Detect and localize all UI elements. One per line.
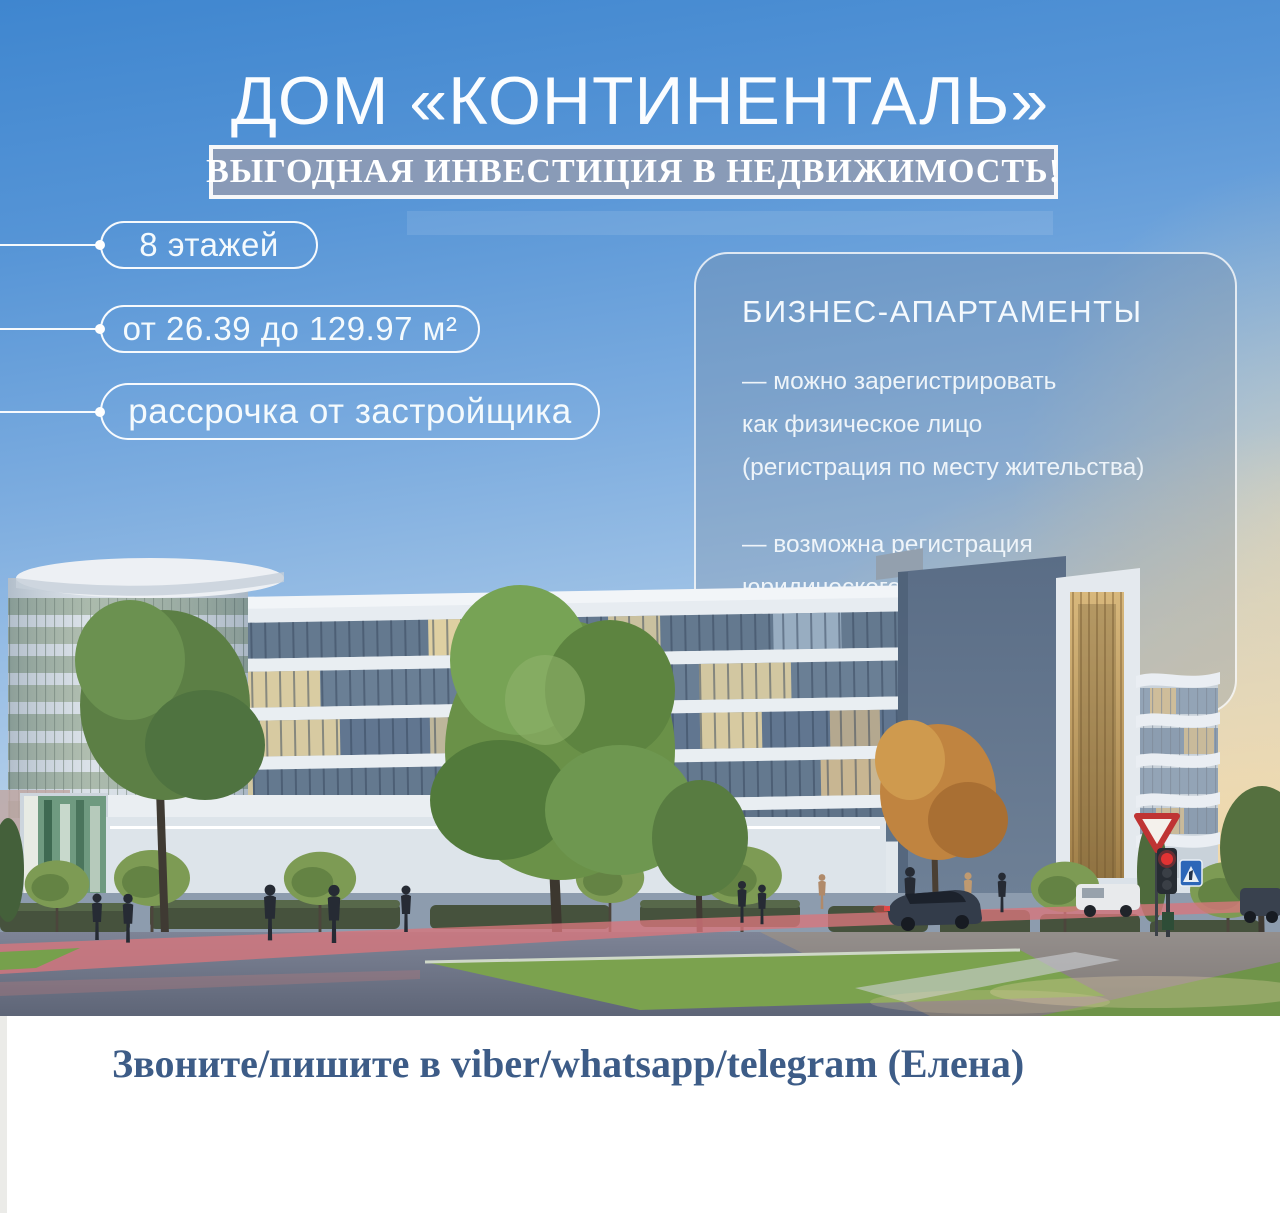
connector-dot — [95, 240, 105, 250]
connector-line — [0, 328, 100, 330]
card-bullet: — возможна регистрация юридического лица… — [742, 523, 1201, 695]
feature-pill-label: рассрочка от застройщика — [128, 392, 571, 432]
feature-pill-label: 8 этажей — [139, 226, 279, 264]
bullet-line: — возможна регистрация — [742, 523, 1201, 566]
bullet-line: (компании любой формы собственности) — [742, 609, 1201, 695]
contact-text: Звоните/пишите в viber/whatsapp/telegram… — [112, 1040, 1024, 1087]
building-photo: БИЗНЕС-АПАРТАМЕНТЫ — можно зарегистриров… — [0, 0, 1280, 1016]
card-bullet: — можно зарегистрировать как физическое … — [742, 360, 1201, 489]
card-heading: БИЗНЕС-АПАРТАМЕНТЫ — [742, 294, 1201, 330]
connector-dot — [95, 407, 105, 417]
connector-dot — [95, 324, 105, 334]
bullet-line: — можно зарегистрировать — [742, 360, 1201, 403]
feature-installment: рассрочка от застройщика — [0, 383, 600, 440]
promo-banner: ВЫГОДНАЯ ИНВЕСТИЦИЯ В НЕДВИЖИМОСТЬ! — [209, 145, 1058, 199]
footer-left-edge — [0, 1016, 7, 1213]
banner-shadow-artifact — [407, 211, 1053, 235]
page-title: ДОМ «КОНТИНЕНТАЛЬ» — [0, 62, 1280, 140]
footer: Звоните/пишите в viber/whatsapp/telegram… — [0, 1016, 1280, 1213]
poster-root: БИЗНЕС-АПАРТАМЕНТЫ — можно зарегистриров… — [0, 0, 1280, 1213]
feature-pill: от 26.39 до 129.97 м² — [100, 305, 480, 353]
bullet-line: как физическое лицо — [742, 403, 1201, 446]
bullet-line: (регистрация по месту жительства) — [742, 446, 1201, 489]
bullet-line: юридического лица — [742, 566, 1201, 609]
connector-line — [0, 244, 100, 246]
feature-pill-label: от 26.39 до 129.97 м² — [123, 310, 458, 348]
connector-line — [0, 411, 100, 413]
feature-pill: 8 этажей — [100, 221, 318, 269]
business-apartments-card: БИЗНЕС-АПАРТАМЕНТЫ — можно зарегистриров… — [694, 252, 1237, 714]
feature-area: от 26.39 до 129.97 м² — [0, 305, 480, 353]
feature-floors: 8 этажей — [0, 221, 318, 269]
feature-pill: рассрочка от застройщика — [100, 383, 600, 440]
